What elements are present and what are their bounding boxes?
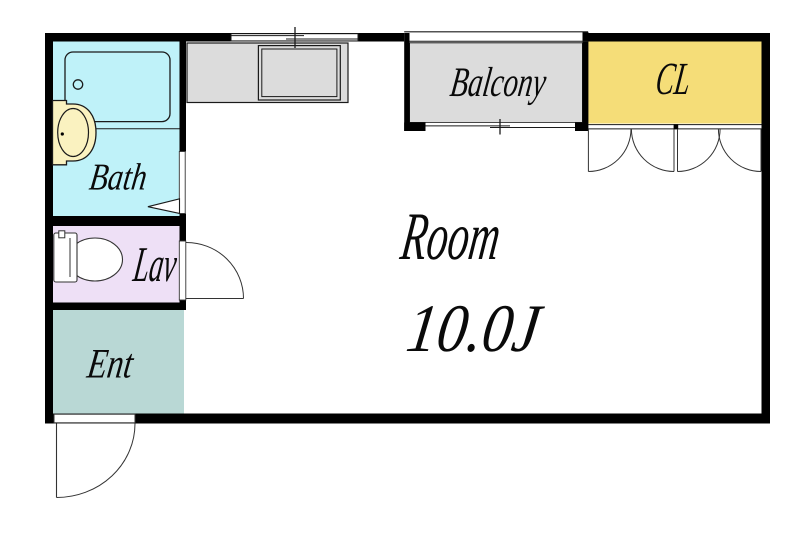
svg-text:10.0J: 10.0J	[402, 290, 547, 366]
svg-text:Ent: Ent	[84, 341, 137, 388]
svg-text:Room: Room	[396, 198, 505, 274]
svg-text:Balcony: Balcony	[448, 59, 550, 106]
svg-text:Bath: Bath	[87, 157, 150, 199]
svg-text:Lav: Lav	[130, 236, 181, 292]
svg-text:CL: CL	[653, 53, 694, 104]
